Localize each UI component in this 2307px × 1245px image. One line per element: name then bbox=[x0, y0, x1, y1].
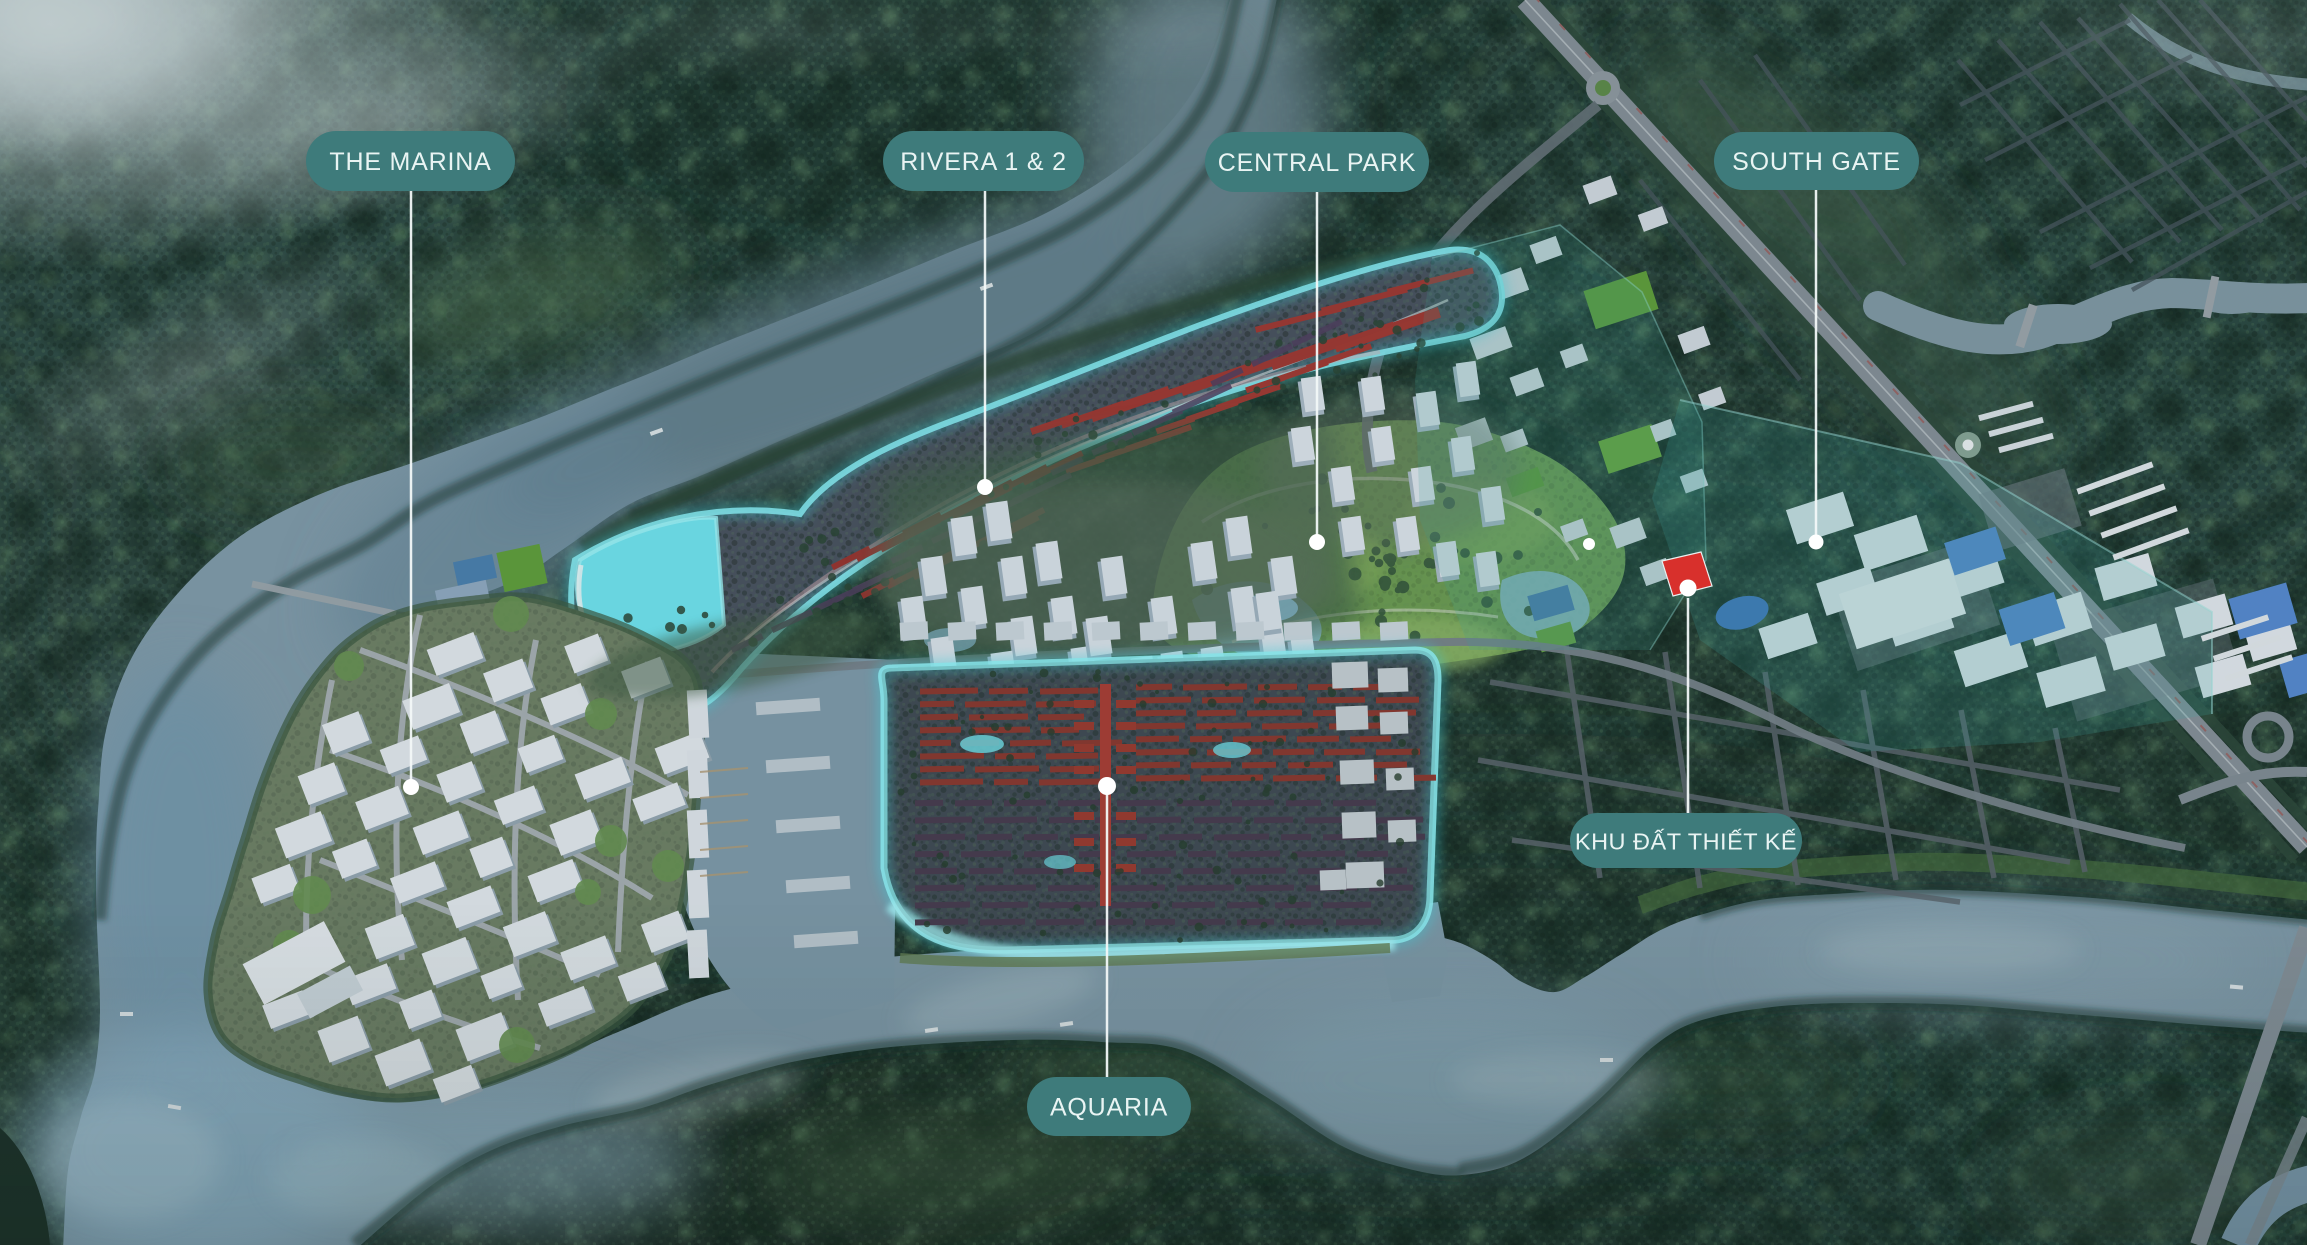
svg-text:RIVERA 1 & 2: RIVERA 1 & 2 bbox=[900, 148, 1067, 176]
svg-text:AQUARIA: AQUARIA bbox=[1050, 1094, 1168, 1122]
svg-text:KHU ĐẤT THIẾT KẾ: KHU ĐẤT THIẾT KẾ bbox=[1575, 828, 1797, 855]
svg-text:THE MARINA: THE MARINA bbox=[329, 148, 491, 176]
svg-text:SOUTH GATE: SOUTH GATE bbox=[1732, 148, 1901, 176]
svg-text:CENTRAL PARK: CENTRAL PARK bbox=[1218, 149, 1417, 177]
